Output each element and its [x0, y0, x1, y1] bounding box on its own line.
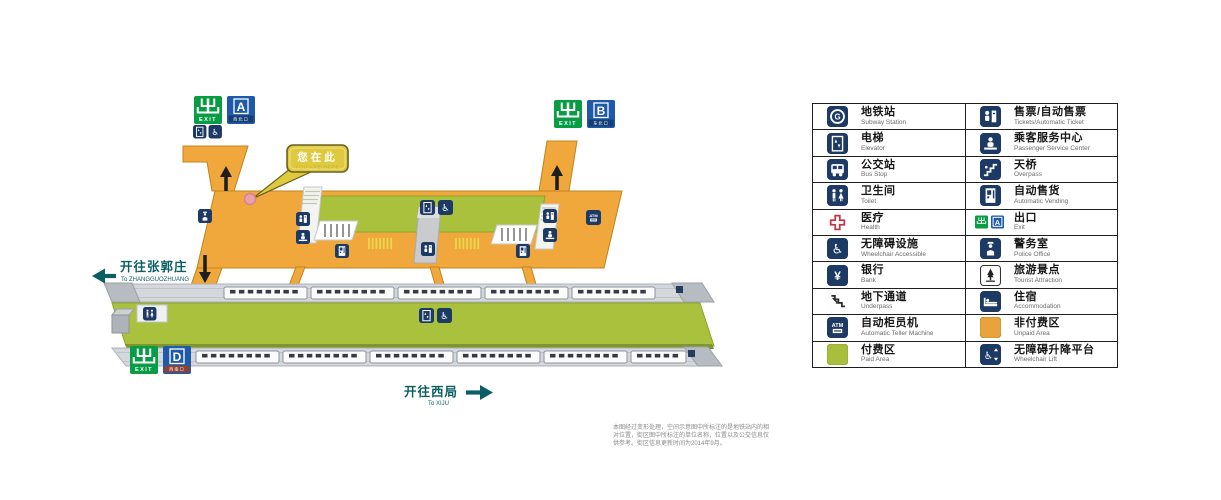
exit-a-arm — [183, 146, 248, 191]
service-icon — [543, 228, 557, 242]
legend-cell-overpass: 天桥Overpass — [965, 157, 1117, 182]
svg-text:To XIJU: To XIJU — [428, 401, 449, 407]
legend-row: 银行Bank 旅游景点Tourist Attraction — [813, 261, 1117, 287]
exit-a-signs: A 西北口 — [193, 96, 255, 138]
legend-cell-service-center: 乘客服务中心Passenger Service Center — [965, 130, 1117, 155]
legend-row: 电梯Elevator 乘客服务中心Passenger Service Cente… — [813, 129, 1117, 155]
legend-row: 地下通道Underpass 住宿Accommodation — [813, 288, 1117, 314]
legend-row: 医疗Health 出口Exit — [813, 209, 1117, 235]
ticket-icon — [296, 212, 310, 226]
svg-text:A: A — [237, 100, 246, 114]
exit-b-signs: B 东北口 — [554, 100, 615, 128]
wheelchair-icon — [822, 238, 852, 259]
legend-row: 付费区Paid Area 无障碍升降平台Wheelchair Lift — [813, 341, 1117, 367]
legend-cell-tickets: 售票/自动售票Tickets/Automatic Ticket — [965, 104, 1117, 129]
svg-text:东北口: 东北口 — [593, 120, 609, 127]
elevator-icon — [420, 200, 435, 215]
subway-station-icon — [822, 106, 852, 127]
legend-cell-paid-area: 付费区Paid Area — [813, 342, 965, 367]
police-icon — [198, 209, 212, 223]
legend-cell-accommodation: 住宿Accommodation — [965, 289, 1117, 314]
exit-a-letter-sign: A 西北口 — [227, 96, 255, 124]
tourist-attraction-icon — [975, 265, 1005, 286]
svg-text:对位置，街区图中所标注的单位名称，位置以及公交信息仅: 对位置，街区图中所标注的单位名称，位置以及公交信息仅 — [613, 431, 769, 439]
legend-cell-wheelchair: 无障碍设施Wheelchair Accessible — [813, 236, 965, 261]
svg-text:西北口: 西北口 — [233, 116, 249, 123]
underpass-icon — [822, 291, 852, 312]
atm-icon — [822, 317, 852, 338]
svg-text:YOU ARE HERE: YOU ARE HERE — [295, 165, 339, 170]
station-map-page: ♿ ATM — [0, 0, 1221, 500]
exit-icon — [975, 215, 1005, 229]
legend-cell-unpaid-area: 非付费区Unpaid Area — [965, 315, 1117, 340]
legend-row: 卫生间Toilet 自动售货Automatic Vending — [813, 182, 1117, 208]
legend-cell-medical: 医疗Health — [813, 210, 965, 235]
train-lower — [196, 351, 686, 363]
you-are-here-dot — [245, 194, 256, 205]
ticket-icon — [543, 209, 557, 223]
wheelchair-icon — [209, 125, 222, 138]
ticket-icon — [975, 106, 1005, 127]
island-platform — [112, 303, 714, 349]
legend-cell-wheelchair-lift: 无障碍升降平台Wheelchair Lift — [965, 342, 1117, 367]
medical-icon — [822, 212, 852, 233]
bank-icon — [822, 265, 852, 286]
svg-text:D: D — [173, 350, 182, 364]
train-upper — [224, 287, 655, 299]
map-footnote: 本图经过变形处理，空间示意图中所标注的是地铁站内的相 对位置，街区图中所标注的单… — [613, 423, 769, 447]
svg-text:B: B — [597, 104, 606, 118]
toilet-icon — [822, 185, 852, 206]
service-icon — [296, 230, 310, 244]
svg-text:西南口: 西南口 — [169, 366, 185, 373]
bus-icon — [822, 159, 852, 180]
you-are-here-text: 您在此 — [297, 151, 338, 164]
vending-icon — [975, 185, 1005, 206]
legend-table: 地铁站Subway Station 售票/自动售票Tickets/Automat… — [812, 103, 1118, 368]
svg-text:本图经过变形处理，空间示意图中所标注的是地铁站内的相: 本图经过变形处理，空间示意图中所标注的是地铁站内的相 — [613, 423, 769, 431]
left-arrow-icon — [92, 269, 105, 284]
station-schematic: ♿ ATM — [0, 0, 810, 500]
legend-cell-toilet: 卫生间Toilet — [813, 183, 965, 208]
exit-d-letter-sign: D 西南口 — [163, 346, 191, 374]
fare-gates — [314, 221, 358, 240]
unpaid-area-swatch — [975, 317, 1005, 338]
exit-b-letter-sign: B 东北口 — [587, 100, 615, 128]
police-icon — [975, 238, 1005, 259]
legend-cell-atm: 自动柜员机Automatic Teller Machine — [813, 315, 965, 340]
elevator-icon — [419, 308, 434, 323]
accommodation-icon — [975, 291, 1005, 312]
paid-area-swatch — [822, 344, 852, 365]
legend-row: 公交站Bus Stop 天桥Overpass — [813, 156, 1117, 182]
legend-cell-exit: 出口Exit — [965, 210, 1117, 235]
svg-text:开往西局: 开往西局 — [404, 384, 458, 399]
vending-icon — [516, 244, 530, 258]
legend-row: 地铁站Subway Station 售票/自动售票Tickets/Automat… — [813, 104, 1117, 129]
elevator-icon — [822, 133, 852, 154]
track-lower — [112, 347, 722, 366]
svg-text:供参考。街区信息更新时间为2014年9月。: 供参考。街区信息更新时间为2014年9月。 — [613, 439, 726, 447]
direction-left: 开往张郭庄 To ZHANGGUOZHUANG — [92, 259, 189, 284]
svg-text:To ZHANGGUOZHUANG: To ZHANGGUOZHUANG — [121, 277, 189, 283]
wheelchair-icon — [437, 308, 452, 323]
elevator-icon — [193, 125, 206, 138]
legend-cell-subway-station: 地铁站Subway Station — [813, 104, 965, 129]
legend-cell-police: 警务室Police Office — [965, 236, 1117, 261]
vending-icon — [335, 244, 349, 258]
track-upper — [104, 283, 714, 302]
right-arrow-icon — [480, 385, 493, 400]
toilet-icon — [143, 307, 156, 320]
legend-row: 无障碍设施Wheelchair Accessible 警务室Police Off… — [813, 235, 1117, 261]
direction-bottom: 开往西局 To XIJU — [404, 384, 493, 407]
legend-cell-bus-stop: 公交站Bus Stop — [813, 157, 965, 182]
legend-row: 自动柜员机Automatic Teller Machine 非付费区Unpaid… — [813, 314, 1117, 340]
legend-cell-underpass: 地下通道Underpass — [813, 289, 965, 314]
atm-icon — [586, 210, 601, 225]
wheelchair-lift-icon — [975, 344, 1005, 365]
ticket-icon — [421, 242, 435, 256]
legend-cell-elevator: 电梯Elevator — [813, 130, 965, 155]
overpass-icon — [975, 159, 1005, 180]
wheelchair-icon — [438, 200, 453, 215]
legend-cell-bank: 银行Bank — [813, 262, 965, 287]
service-center-icon — [975, 133, 1005, 154]
legend-cell-tourist: 旅游景点Tourist Attraction — [965, 262, 1117, 287]
svg-text:开往张郭庄: 开往张郭庄 — [120, 259, 188, 274]
legend-cell-vending: 自动售货Automatic Vending — [965, 183, 1117, 208]
